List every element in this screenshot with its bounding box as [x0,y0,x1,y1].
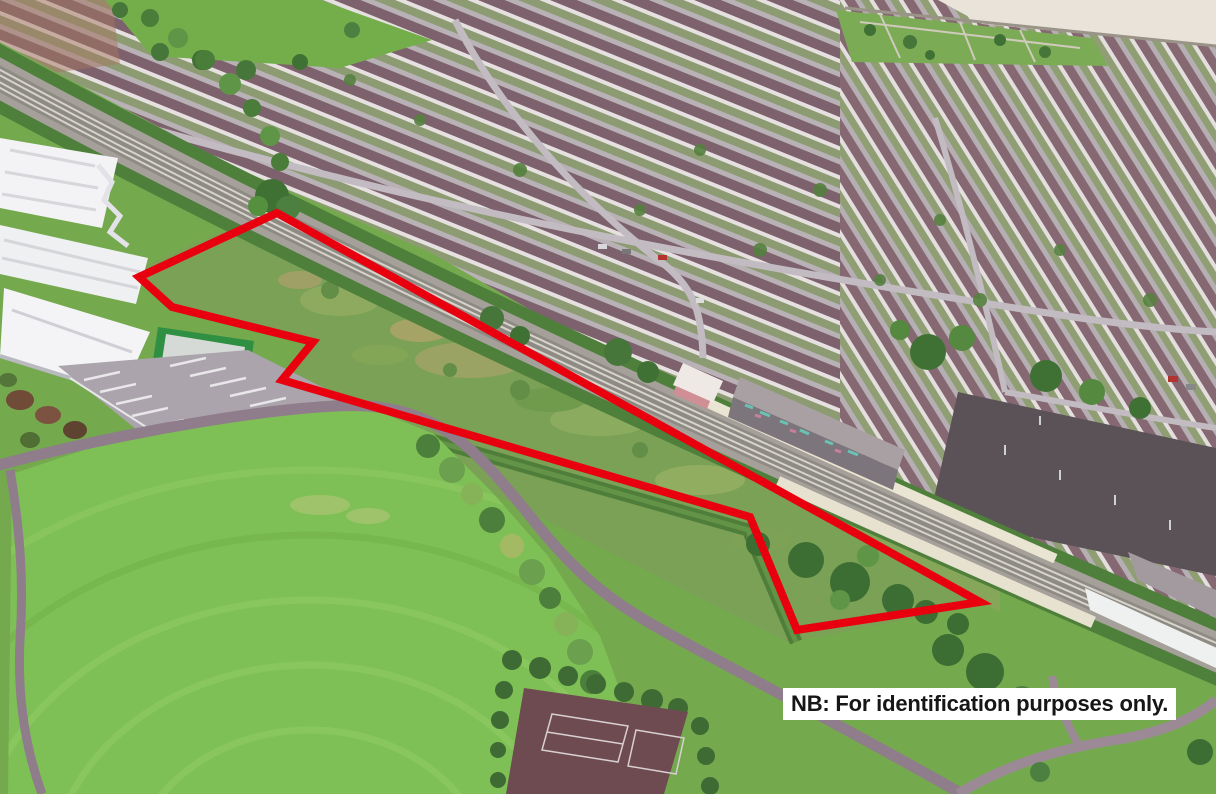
aerial-photo: NB: For identification purposes only. [0,0,1216,794]
aerial-photo-canvas [0,0,1216,794]
disclaimer-caption: NB: For identification purposes only. [783,688,1176,720]
